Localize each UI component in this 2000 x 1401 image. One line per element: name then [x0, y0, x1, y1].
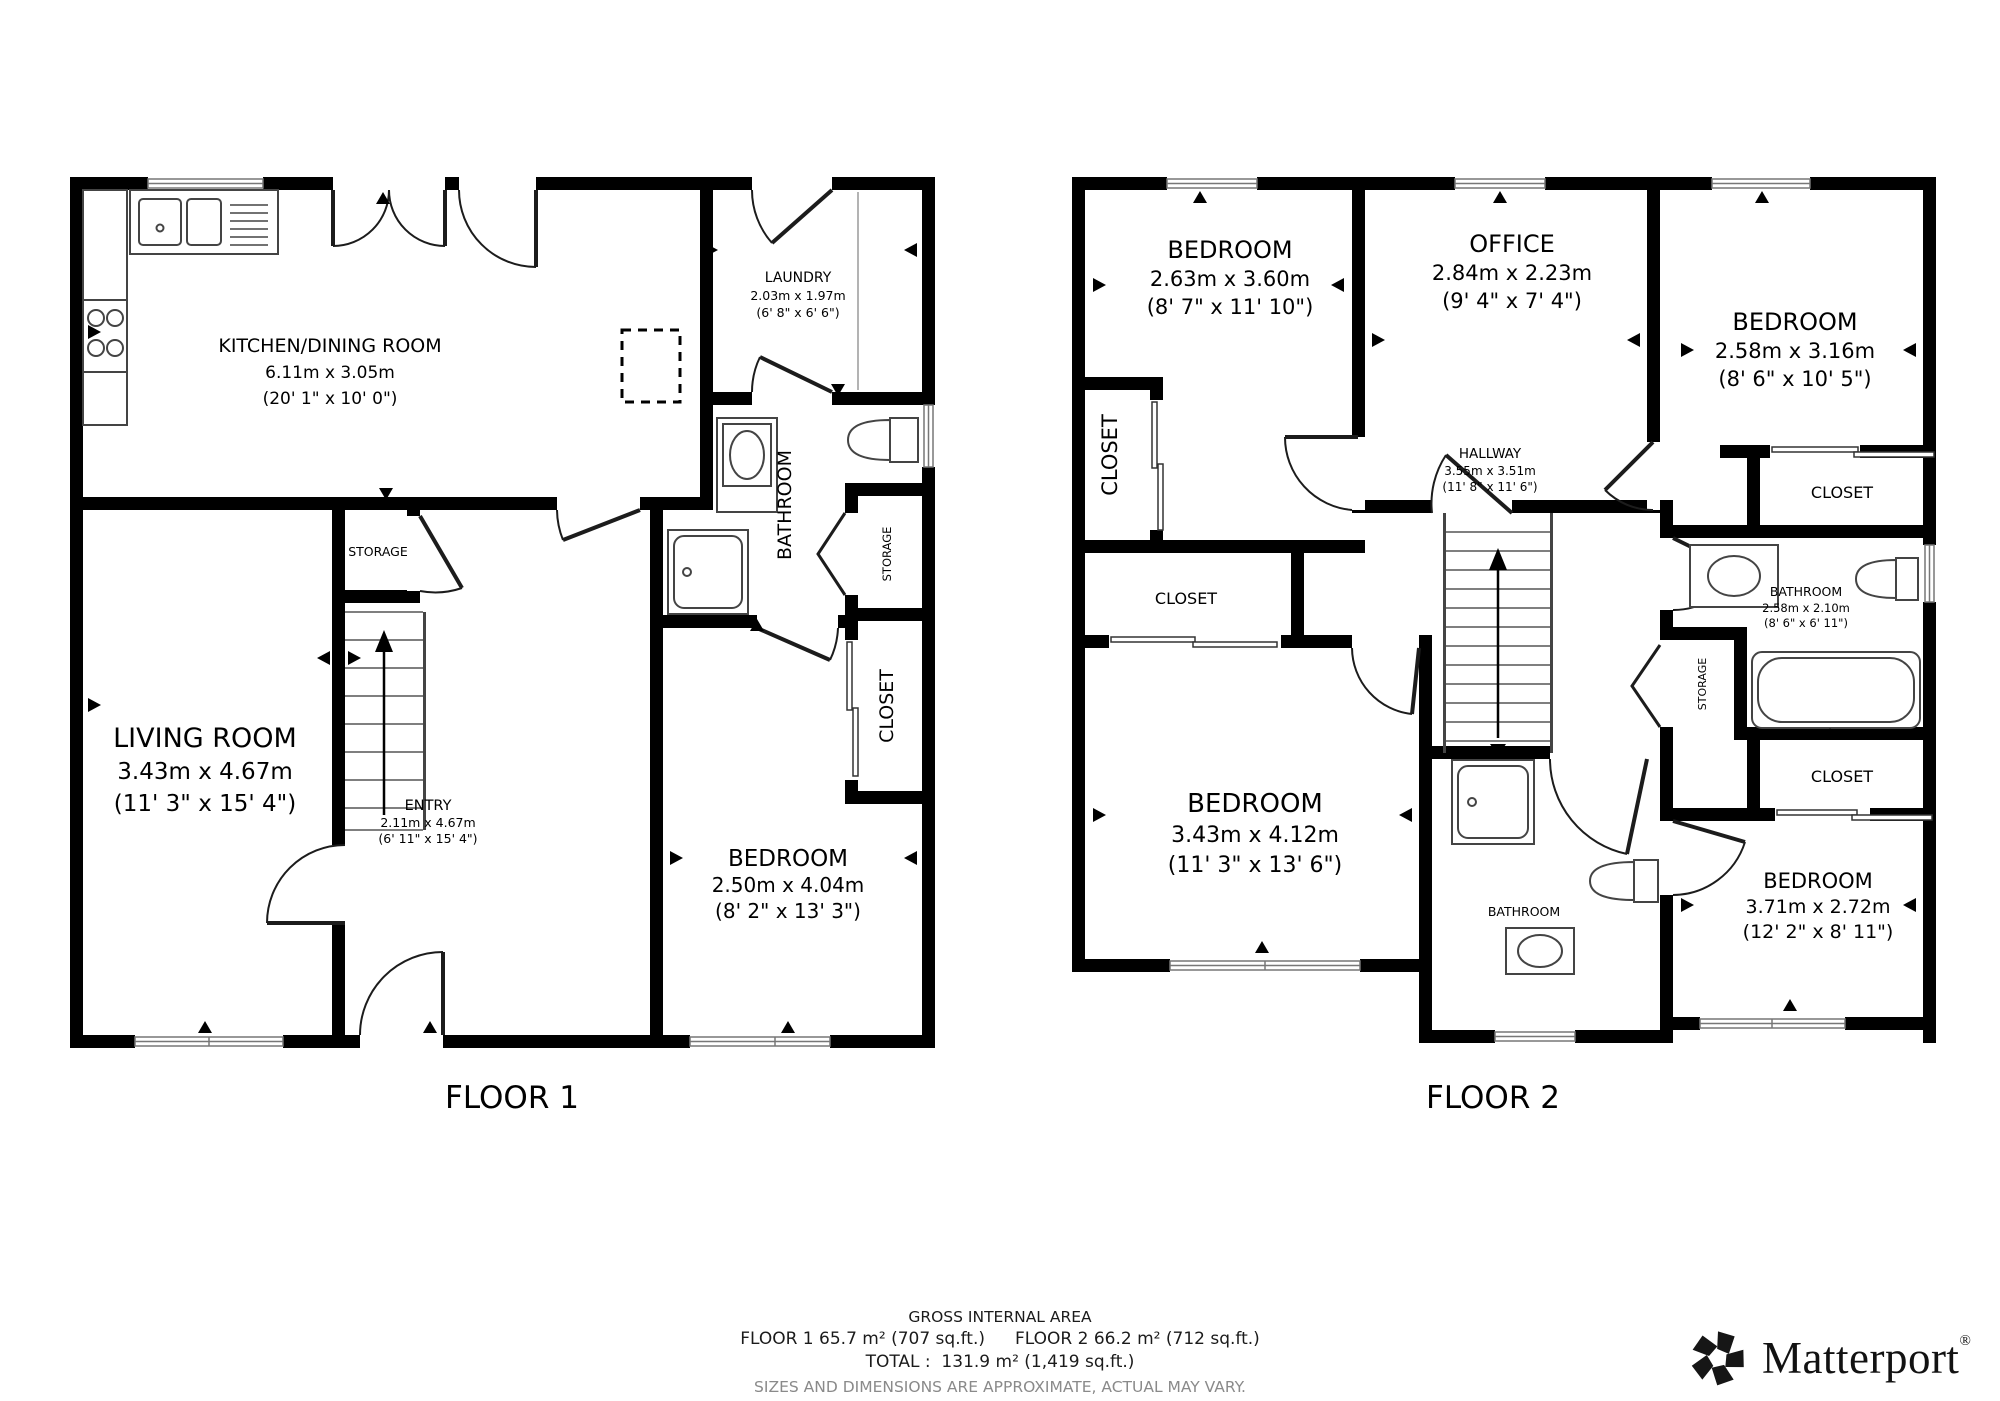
room-dim-bedroom-tr-imperial: (8' 6" x 10' 5") — [1718, 367, 1871, 391]
bifold-door-icon — [818, 513, 845, 595]
room-label-bedroom-bl: BEDROOM — [1187, 789, 1323, 819]
room-label-closet1: CLOSET — [876, 669, 898, 743]
floor2-area: FLOOR 2 66.2 m² (712 sq.ft.) — [1015, 1329, 1260, 1349]
floor1-title: FLOOR 1 — [445, 1080, 579, 1116]
floor2-title: FLOOR 2 — [1426, 1080, 1560, 1116]
room-label-hallway: HALLWAY — [1459, 446, 1522, 462]
bathroom1-shower-icon — [668, 530, 748, 614]
room-label-bedroom1: BEDROOM — [728, 846, 848, 872]
brand-name: Matterport — [1762, 1333, 1959, 1383]
room-label-living: LIVING ROOM — [113, 723, 297, 754]
floorplan-drawing: KITCHEN/DINING ROOM 6.11m x 3.05m (20' 1… — [0, 0, 2000, 1260]
bathroom1-toilet-icon — [848, 418, 918, 462]
room-dim-bedroom-br-metric: 3.71m x 2.72m — [1746, 896, 1891, 918]
room-label-storage-side: STORAGE — [880, 527, 894, 582]
room-dim-hallway-imperial: (11' 8" x 11' 6") — [1442, 480, 1537, 494]
room-dim-bedroom-tl-imperial: (8' 7" x 11' 10") — [1147, 295, 1314, 319]
matterport-pinwheel-icon — [1688, 1327, 1748, 1389]
room-label-closet-left: CLOSET — [1098, 414, 1122, 496]
floor1-plan: KITCHEN/DINING ROOM 6.11m x 3.05m (20' 1… — [70, 177, 935, 1116]
room-dim-hallway-metric: 3.55m x 3.51m — [1444, 464, 1536, 478]
room-dim-bedroom-tr-metric: 2.58m x 3.16m — [1715, 339, 1875, 363]
room-dim-bedroom-br-imperial: (12' 2" x 8' 11") — [1743, 921, 1894, 943]
room-label-storage2: STORAGE — [1696, 658, 1709, 710]
stairs-up-arrow-icon — [375, 630, 393, 652]
room-label-entry: ENTRY — [405, 798, 452, 814]
room-dim-entry-metric: 2.11m x 4.67m — [380, 815, 475, 830]
room-dim-kitchen-metric: 6.11m x 3.05m — [265, 363, 395, 383]
room-dim-bedroom1-imperial: (8' 2" x 13' 3") — [715, 899, 861, 923]
appliance-dashed-icon — [622, 330, 680, 402]
bathroom-mid-shower-icon — [1452, 760, 1534, 844]
room-dim-office-metric: 2.84m x 2.23m — [1432, 261, 1592, 285]
bathroom2-sink-icon — [1690, 545, 1778, 607]
room-label-office: OFFICE — [1469, 230, 1555, 258]
bathroom-mid-toilet-icon — [1590, 860, 1658, 902]
room-label-kitchen: KITCHEN/DINING ROOM — [218, 335, 441, 357]
floor1-area: FLOOR 1 65.7 m² (707 sq.ft.) — [740, 1329, 985, 1349]
room-label-bathroom-right: BATHROOM — [1770, 584, 1842, 599]
room-label-laundry: LAUNDRY — [765, 270, 832, 286]
room-dim-bedroom-bl-imperial: (11' 3" x 13' 6") — [1168, 853, 1342, 878]
room-dim-office-imperial: (9' 4" x 7' 4") — [1442, 289, 1582, 313]
room-label-bathroom-mid: BATHROOM — [1488, 904, 1560, 919]
floor2-plan: BEDROOM 2.63m x 3.60m (8' 7" x 11' 10") … — [1072, 177, 1936, 1116]
room-dim-laundry-imperial: (6' 8" x 6' 6") — [756, 305, 839, 320]
room-dim-kitchen-imperial: (20' 1" x 10' 0") — [263, 389, 398, 409]
bathroom-mid-sink-icon — [1506, 928, 1574, 974]
bathroom2-toilet-icon — [1856, 558, 1918, 600]
room-dim-living-imperial: (11' 3" x 15' 4") — [114, 791, 296, 817]
room-label-bedroom-br: BEDROOM — [1763, 869, 1873, 893]
room-dim-bedroom1-metric: 2.50m x 4.04m — [712, 873, 865, 897]
room-dim-living-metric: 3.43m x 4.67m — [117, 759, 292, 785]
room-label-closet-tr: CLOSET — [1811, 483, 1873, 502]
room-label-bedroom-tl: BEDROOM — [1167, 236, 1292, 264]
room-label-bathroom1: BATHROOM — [774, 450, 796, 560]
room-label-closet-mid: CLOSET — [1155, 589, 1217, 608]
matterport-logo: Matterport® — [1688, 1322, 1971, 1394]
room-label-storage-hall: STORAGE — [348, 544, 408, 559]
bifold-door-icon — [1632, 645, 1660, 727]
room-label-closet-br: CLOSET — [1811, 767, 1873, 786]
bathroom1-sink-icon — [717, 418, 777, 512]
matterport-wordmark: Matterport® — [1762, 1332, 1971, 1384]
room-dim-entry-imperial: (6' 11" x 15' 4") — [378, 831, 477, 846]
floorplan-page: KITCHEN/DINING ROOM 6.11m x 3.05m (20' 1… — [0, 0, 2000, 1401]
room-dim-bathroom-right-imperial: (8' 6" x 6' 11") — [1764, 616, 1848, 630]
bathtub-icon — [1752, 652, 1920, 728]
room-dim-laundry-metric: 2.03m x 1.97m — [750, 288, 845, 303]
room-dim-bedroom-bl-metric: 3.43m x 4.12m — [1171, 823, 1339, 848]
registered-mark: ® — [1959, 1333, 1971, 1349]
room-dim-bathroom-right-metric: 2.58m x 2.10m — [1762, 601, 1850, 615]
room-label-bedroom-tr: BEDROOM — [1732, 308, 1857, 336]
floor2-stairs — [1443, 513, 1553, 756]
room-dim-bedroom-tl-metric: 2.63m x 3.60m — [1150, 267, 1310, 291]
